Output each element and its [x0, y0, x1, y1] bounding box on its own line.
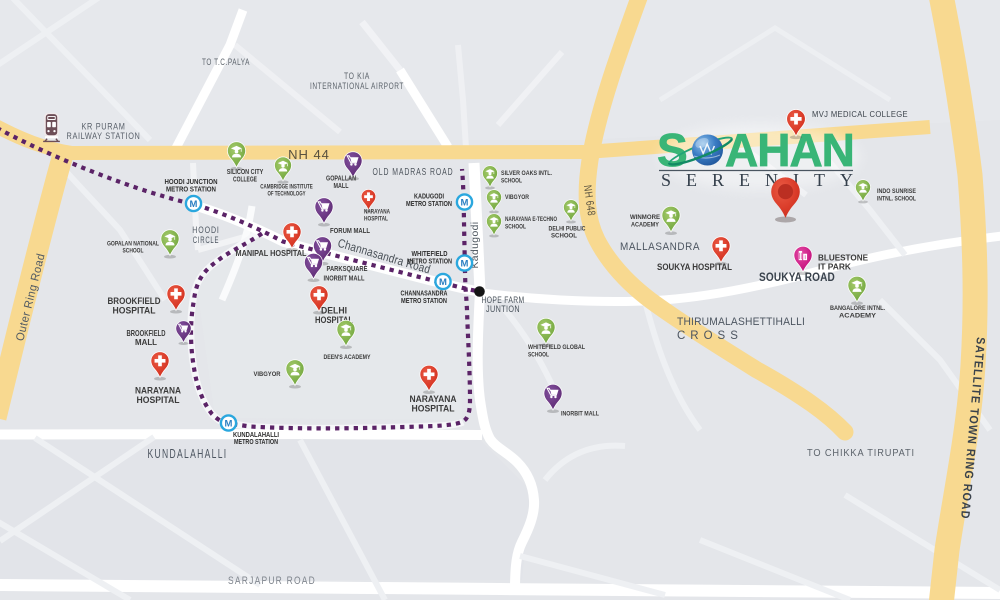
svg-text:HOSPITAL: HOSPITAL: [137, 395, 181, 405]
svg-text:KUNDALAHALLI: KUNDALAHALLI: [233, 432, 279, 439]
svg-text:NH 44: NH 44: [288, 147, 330, 162]
svg-text:INORBIT MALL: INORBIT MALL: [561, 411, 599, 418]
svg-text:VIBGYOR: VIBGYOR: [254, 371, 281, 378]
svg-text:NARAYANA: NARAYANA: [135, 386, 182, 396]
svg-text:NARAYANA E-TECHNO: NARAYANA E-TECHNO: [505, 216, 557, 223]
svg-text:RAILWAY STATION: RAILWAY STATION: [67, 131, 141, 141]
svg-text:DELHI PUBLIC: DELHI PUBLIC: [549, 226, 586, 233]
svg-text:HOSPITAL: HOSPITAL: [412, 404, 456, 414]
svg-text:CROSS: CROSS: [677, 330, 743, 342]
svg-text:OF TECHNOLOGY: OF TECHNOLOGY: [268, 191, 306, 198]
svg-text:NARAYANA: NARAYANA: [364, 209, 390, 216]
svg-text:DEEN'S ACADEMY: DEEN'S ACADEMY: [324, 354, 372, 361]
svg-text:MALL: MALL: [334, 183, 350, 190]
svg-text:METRO STATION: METRO STATION: [407, 257, 452, 266]
svg-text:GOPALAN NATIONAL: GOPALAN NATIONAL: [107, 241, 159, 248]
svg-text:BANGALORE INTNL.: BANGALORE INTNL.: [830, 305, 885, 312]
svg-text:MVJ MEDICAL COLLEGE: MVJ MEDICAL COLLEGE: [812, 110, 908, 119]
svg-text:METRO STATION: METRO STATION: [166, 185, 216, 194]
svg-text:COLLEGE: COLLEGE: [233, 177, 257, 184]
svg-text:HOSPITAL: HOSPITAL: [364, 216, 388, 223]
svg-text:WINMORE: WINMORE: [630, 214, 661, 221]
svg-text:VIBGYOR: VIBGYOR: [505, 194, 529, 201]
svg-text:CAMBRIDGE INSTITUTE: CAMBRIDGE INSTITUTE: [260, 184, 313, 191]
svg-text:BLUESTONE: BLUESTONE: [818, 254, 869, 263]
svg-text:SCHOOL: SCHOOL: [505, 224, 526, 231]
svg-text:METRO STATION: METRO STATION: [401, 296, 447, 305]
svg-text:OLD MADRAS ROAD: OLD MADRAS ROAD: [373, 167, 454, 178]
svg-text:SCHOOL: SCHOOL: [528, 352, 549, 359]
svg-text:SOUKYA HOSPITAL: SOUKYA HOSPITAL: [657, 262, 733, 272]
svg-text:S: S: [657, 124, 688, 176]
svg-text:NARAYANA: NARAYANA: [410, 394, 458, 404]
svg-text:SCHOOL: SCHOOL: [501, 178, 522, 185]
svg-text:KUNDALAHALLI: KUNDALAHALLI: [148, 446, 228, 461]
svg-text:INTERNATIONAL AIRPORT: INTERNATIONAL AIRPORT: [310, 81, 404, 91]
svg-text:INORBIT MALL: INORBIT MALL: [324, 276, 366, 283]
svg-text:INDO SUNRISE: INDO SUNRISE: [877, 188, 917, 195]
svg-text:SERENITY: SERENITY: [661, 170, 868, 190]
svg-text:SCHOOL: SCHOOL: [551, 233, 577, 240]
svg-text:SOUKYA ROAD: SOUKYA ROAD: [759, 272, 835, 284]
svg-text:FORUM MALL: FORUM MALL: [330, 226, 370, 235]
svg-text:METRO STATION: METRO STATION: [406, 199, 452, 208]
svg-text:MANIPAL HOSPITAL: MANIPAL HOSPITAL: [236, 249, 307, 258]
svg-text:TO KIA: TO KIA: [344, 71, 370, 81]
svg-text:DELHI: DELHI: [321, 306, 347, 316]
svg-text:SARJAPUR ROAD: SARJAPUR ROAD: [228, 575, 316, 587]
svg-text:THIRUMALASHETTIHALLI: THIRUMALASHETTIHALLI: [677, 316, 805, 328]
svg-text:SILVER OAKS INTL.: SILVER OAKS INTL.: [501, 170, 552, 177]
svg-text:MALLASANDRA: MALLASANDRA: [620, 241, 700, 253]
svg-text:SILICON CITY: SILICON CITY: [227, 169, 264, 176]
svg-text:TO T.C.PALYA: TO T.C.PALYA: [202, 57, 250, 67]
svg-text:TO CHIKKA TIRUPATI: TO CHIKKA TIRUPATI: [807, 447, 915, 459]
svg-text:PARKSQUARE: PARKSQUARE: [327, 266, 368, 273]
svg-text:CIRCLE: CIRCLE: [193, 235, 220, 246]
svg-text:WHITEFIELD GLOBAL: WHITEFIELD GLOBAL: [528, 344, 585, 351]
svg-text:AHAN: AHAN: [725, 124, 854, 176]
svg-text:HOSPITAL: HOSPITAL: [113, 306, 157, 316]
svg-text:BROOKFIELD: BROOKFIELD: [108, 296, 161, 306]
svg-text:SCHOOL: SCHOOL: [123, 248, 144, 255]
svg-text:INTNL. SCHOOL: INTNL. SCHOOL: [877, 196, 916, 203]
svg-text:ACADEMY: ACADEMY: [839, 313, 877, 320]
svg-text:GOPALLAN: GOPALLAN: [326, 176, 356, 183]
svg-text:IT PARK: IT PARK: [818, 263, 851, 272]
svg-text:MALL: MALL: [135, 338, 157, 347]
svg-text:JUNTION: JUNTION: [486, 304, 520, 315]
svg-text:METRO STATION: METRO STATION: [234, 439, 278, 446]
svg-text:ACADEMY: ACADEMY: [631, 222, 660, 229]
svg-text:BROOKFIELD: BROOKFIELD: [127, 329, 166, 338]
